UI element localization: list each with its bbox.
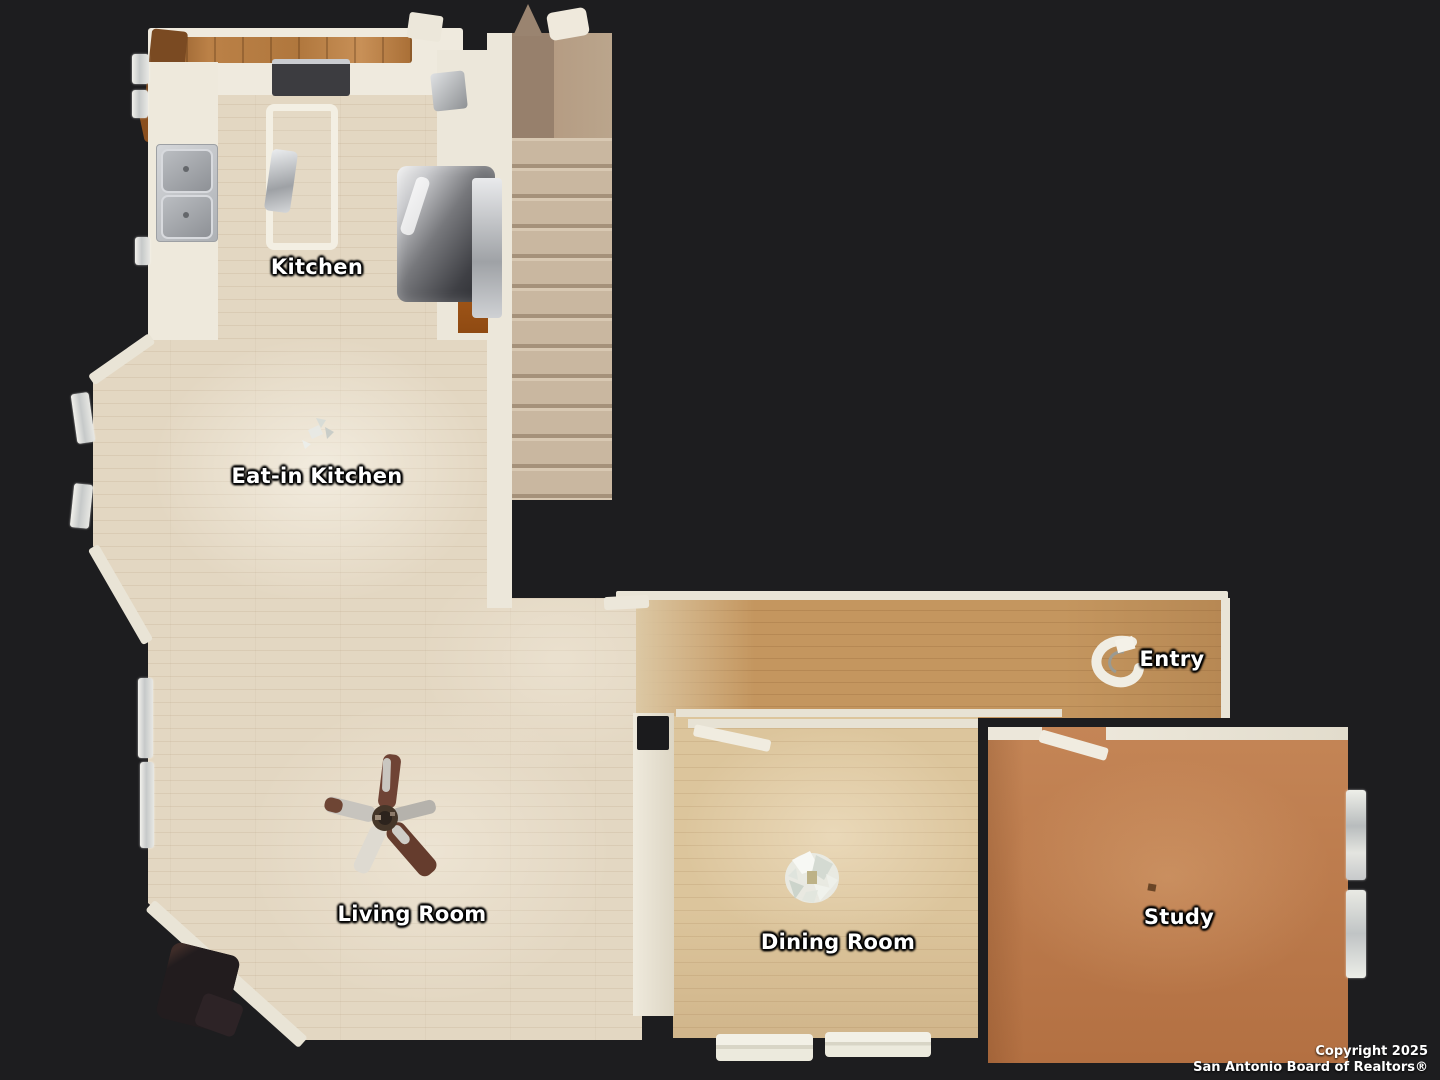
window-icon <box>71 392 96 444</box>
window-icon <box>135 237 150 265</box>
room-label-entry: Entry <box>1140 647 1205 671</box>
dining-window-sill <box>825 1032 931 1057</box>
stair-landing <box>512 33 612 138</box>
front-wall <box>1221 598 1230 718</box>
room-label-study: Study <box>1144 905 1214 929</box>
dining-top-wall <box>688 719 978 728</box>
hall-top-wall <box>616 591 1228 600</box>
floor-dining-room <box>673 715 978 1038</box>
study-top-wall-left <box>988 727 1042 740</box>
window-icon <box>132 90 148 118</box>
living-dining-divider-wall <box>633 713 674 1016</box>
dining-window-sill <box>716 1034 813 1061</box>
copyright-line-2: San Antonio Board of Realtors® <box>1193 1060 1428 1076</box>
window-icon <box>70 483 93 529</box>
copyright-notice: Copyright 2025 San Antonio Board of Real… <box>1193 1044 1428 1076</box>
hall-wall-fragment <box>604 595 650 610</box>
refrigerator-side-panel <box>472 178 502 318</box>
study-window-icon <box>1346 890 1366 978</box>
floorplan-canvas: Kitchen Eat-in Kitchen Entry Living Room… <box>0 0 1440 1080</box>
wall-column-gap <box>637 716 669 750</box>
wall-fragment <box>406 12 443 42</box>
window-icon <box>132 54 149 84</box>
vent-hood-icon <box>430 70 468 111</box>
room-label-kitchen: Kitchen <box>271 255 363 279</box>
sink-drain-icon <box>183 212 189 218</box>
sink-drain-icon <box>183 166 189 172</box>
study-window-icon <box>1346 790 1366 880</box>
window-icon <box>138 678 153 758</box>
stair-side-wall <box>487 33 512 608</box>
staircase <box>512 138 612 500</box>
floor-study <box>988 727 1348 1063</box>
hall-bottom-wall <box>676 709 1062 717</box>
range-icon <box>272 59 350 96</box>
room-label-living-room: Living Room <box>338 902 487 926</box>
window-icon <box>140 762 154 848</box>
room-label-eat-in-kitchen: Eat-in Kitchen <box>231 464 402 488</box>
stair-roof-artifact <box>513 4 543 36</box>
study-top-wall-right <box>1106 727 1348 740</box>
room-label-dining-room: Dining Room <box>761 930 915 954</box>
copyright-line-1: Copyright 2025 <box>1193 1044 1428 1060</box>
